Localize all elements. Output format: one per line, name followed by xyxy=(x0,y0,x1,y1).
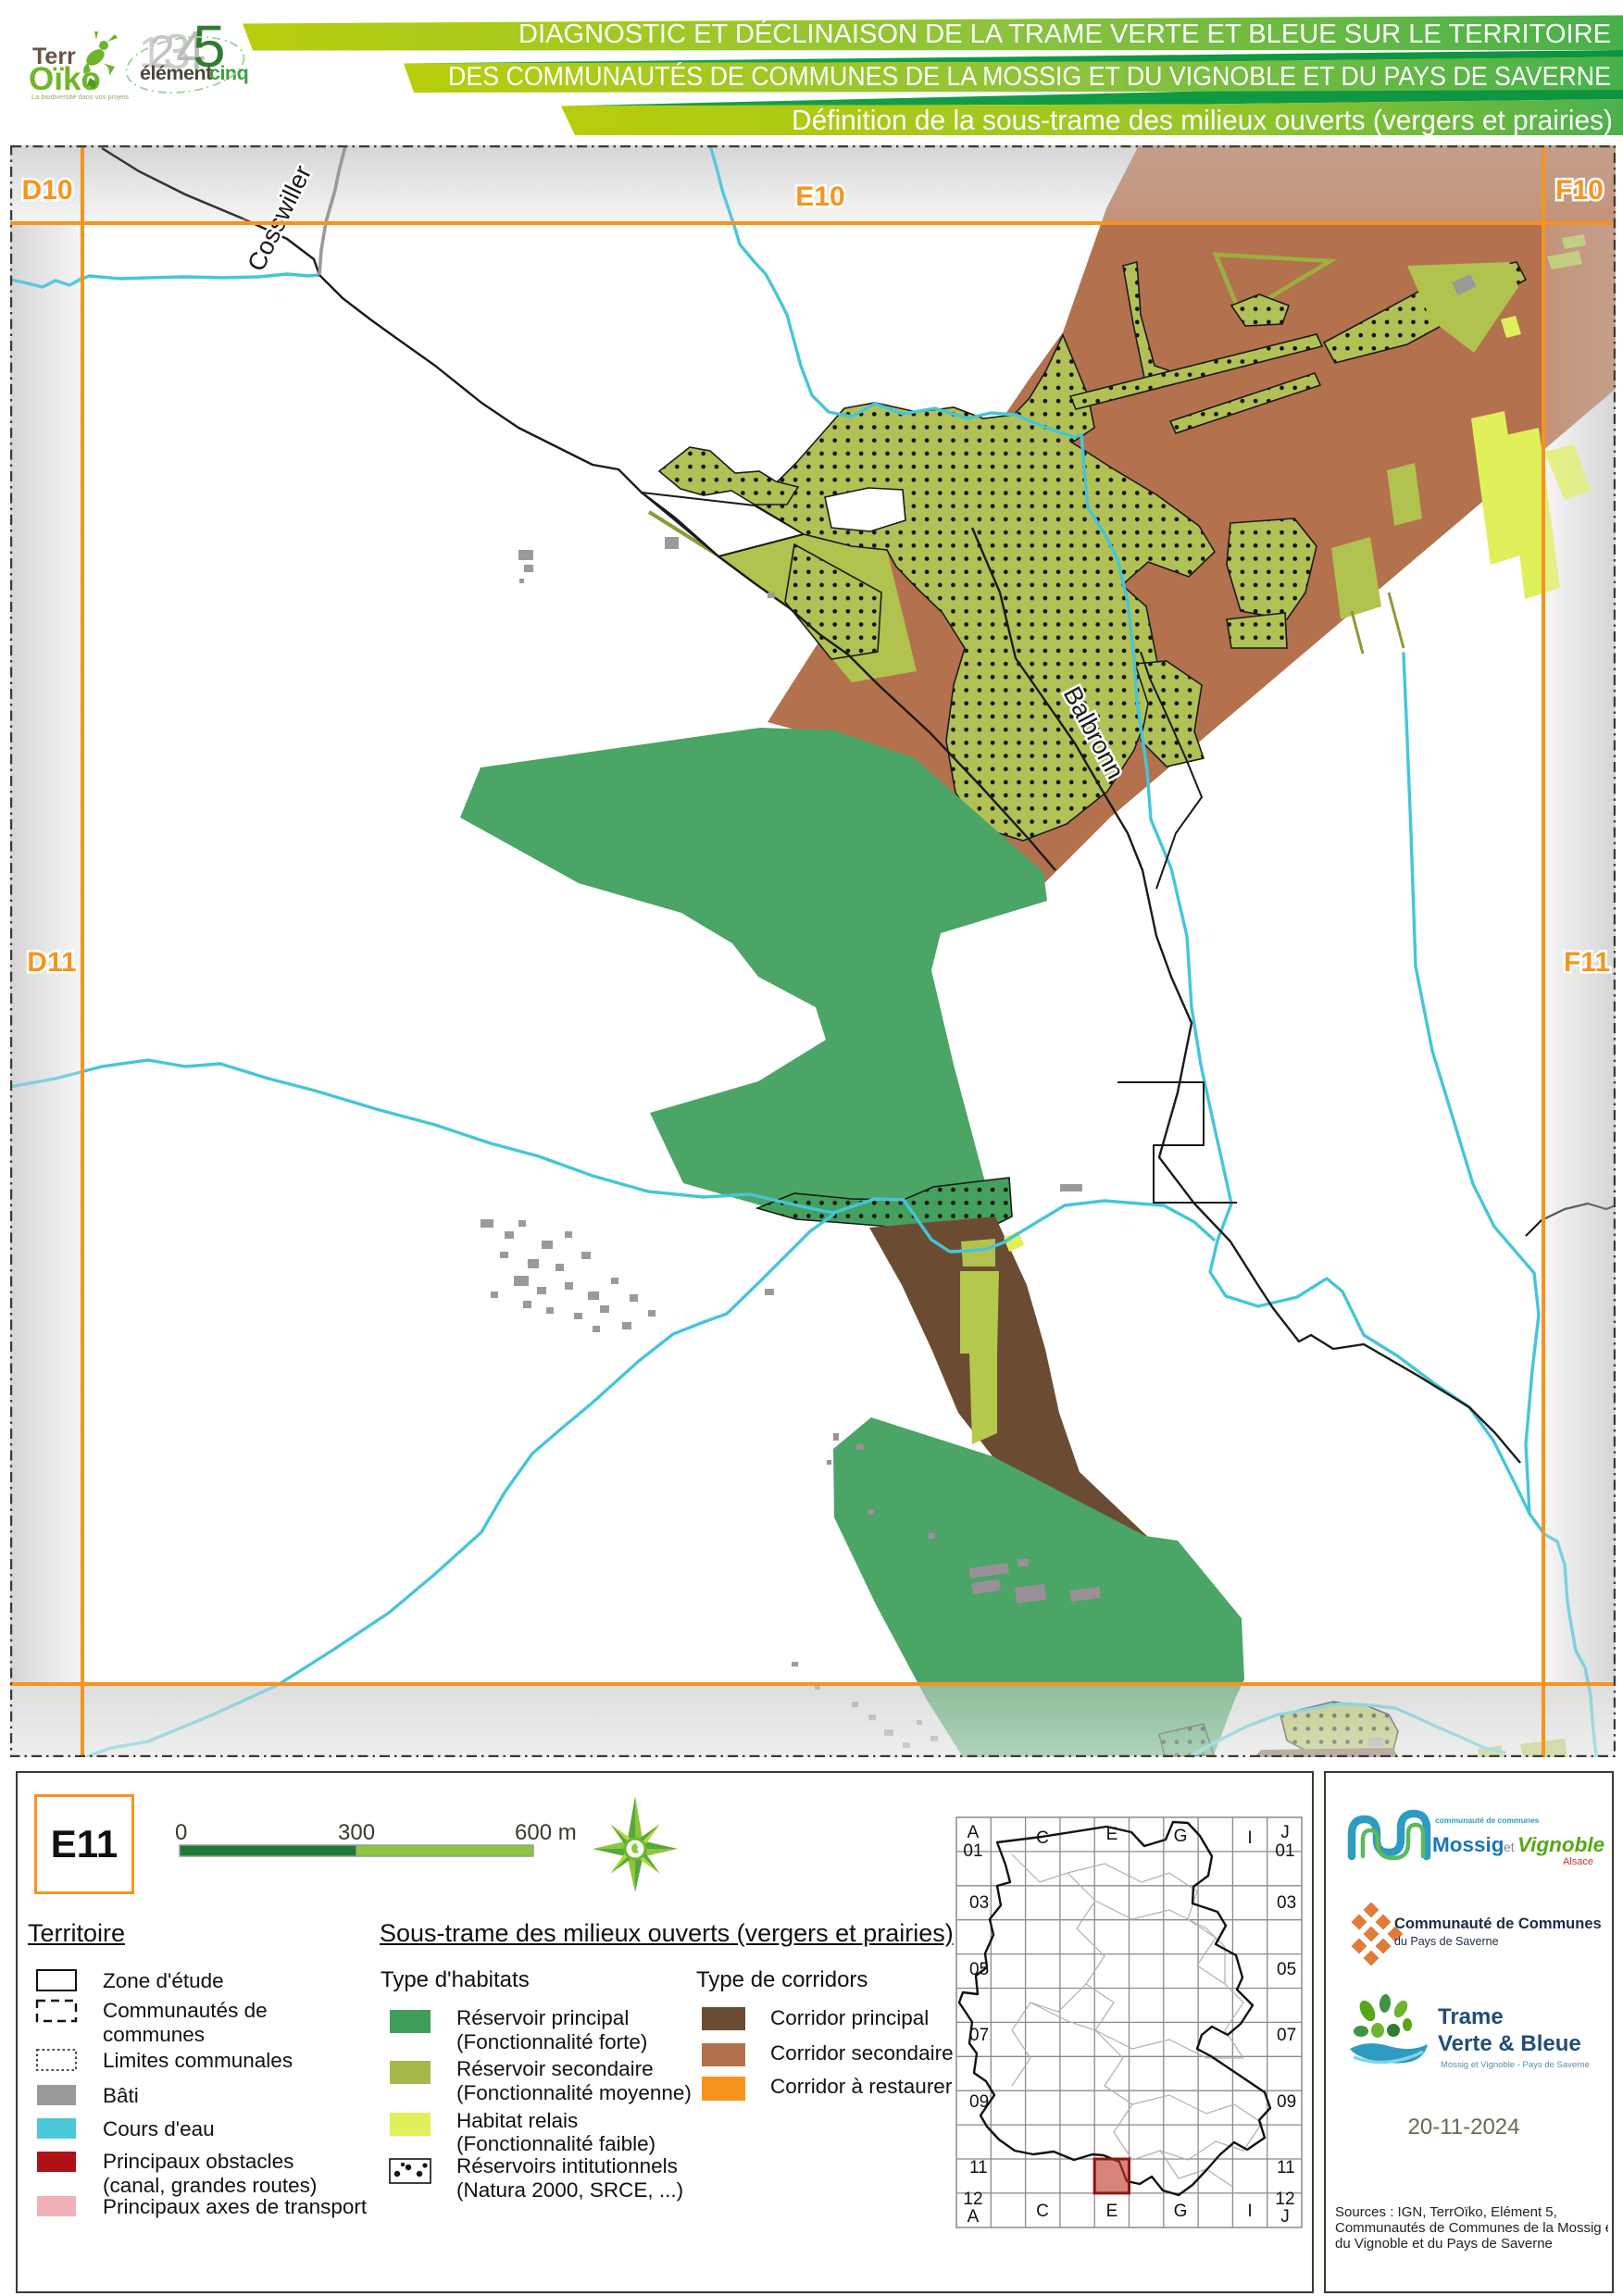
svg-text:12: 12 xyxy=(1275,2190,1294,2209)
svg-text:Corridor secondaire: Corridor secondaire xyxy=(770,2041,954,2065)
svg-text:(canal, grandes routes): (canal, grandes routes) xyxy=(103,2174,317,2197)
svg-text:Zone d'étude: Zone d'étude xyxy=(103,1969,224,1992)
svg-text:(Fonctionnalité moyenne): (Fonctionnalité moyenne) xyxy=(456,2081,692,2104)
svg-text:12: 12 xyxy=(963,2190,982,2209)
svg-text:Réservoir secondaire: Réservoir secondaire xyxy=(456,2057,654,2080)
svg-text:I: I xyxy=(1247,2202,1252,2221)
svg-text:Vignoble: Vignoble xyxy=(1517,1833,1604,1856)
svg-text:du Vignoble et du Pays de Save: du Vignoble et du Pays de Saverne xyxy=(1335,2236,1553,2252)
svg-text:09: 09 xyxy=(1277,2092,1296,2112)
svg-text:07: 07 xyxy=(1277,2026,1296,2045)
svg-text:Corridor à restaurer: Corridor à restaurer xyxy=(770,2075,953,2098)
svg-text:Mossig et Vignoble - Pays de S: Mossig et Vignoble - Pays de Saverne xyxy=(1441,2060,1590,2070)
svg-text:Limites communales: Limites communales xyxy=(103,2049,293,2072)
svg-text:F11: F11 xyxy=(1564,947,1610,978)
svg-text:Communauté de Communes: Communauté de Communes xyxy=(1394,1915,1602,1932)
svg-text:03: 03 xyxy=(1277,1893,1296,1913)
svg-text:Réservoirs intitutionnels: Réservoirs intitutionnels xyxy=(456,2154,678,2177)
svg-text:C: C xyxy=(1036,1828,1049,1848)
svg-text:(Natura 2000, SRCE, ...): (Natura 2000, SRCE, ...) xyxy=(456,2178,683,2202)
svg-text:F10: F10 xyxy=(1555,175,1604,206)
svg-text:E10: E10 xyxy=(795,181,844,212)
svg-text:Mossig: Mossig xyxy=(1432,1833,1504,1856)
svg-text:communes: communes xyxy=(103,2023,205,2046)
svg-text:09: 09 xyxy=(969,2092,989,2112)
svg-text:cinq: cinq xyxy=(209,62,248,84)
svg-text:Communautés de: Communautés de xyxy=(103,1999,268,2022)
svg-text:Habitat relais: Habitat relais xyxy=(456,2109,578,2132)
svg-text:élément: élément xyxy=(140,62,212,84)
svg-text:A: A xyxy=(968,1823,980,1842)
svg-text:01: 01 xyxy=(1275,1841,1294,1861)
svg-text:A: A xyxy=(968,2207,980,2227)
svg-text:D11: D11 xyxy=(27,947,76,978)
svg-text:J: J xyxy=(1280,2207,1290,2227)
svg-text:Trame: Trame xyxy=(1438,2004,1504,2029)
svg-text:Bâti: Bâti xyxy=(103,2084,139,2107)
svg-text:Type d'habitats: Type d'habitats xyxy=(381,1967,530,1992)
svg-text:communauté de communes: communauté de communes xyxy=(1435,1816,1540,1825)
svg-text:E: E xyxy=(1106,2202,1118,2221)
svg-text:05: 05 xyxy=(1277,1960,1296,1979)
svg-text:07: 07 xyxy=(969,2026,989,2045)
svg-text:Principaux axes de transport: Principaux axes de transport xyxy=(103,2195,368,2218)
svg-text:Principaux obstacles: Principaux obstacles xyxy=(103,2150,293,2173)
svg-text:C: C xyxy=(1036,2202,1049,2221)
svg-text:11: 11 xyxy=(1277,2158,1295,2177)
svg-text:J: J xyxy=(1280,1823,1290,1842)
svg-text:D10: D10 xyxy=(21,175,72,206)
svg-text:et: et xyxy=(1504,1840,1515,1854)
svg-text:La biodiversité dans vos proje: La biodiversité dans vos projets xyxy=(31,93,129,101)
svg-text:du Pays de Saverne: du Pays de Saverne xyxy=(1394,1935,1499,1948)
svg-text:(Fonctionnalité faible): (Fonctionnalité faible) xyxy=(456,2132,655,2155)
svg-text:Définition de la sous-trame de: Définition de la sous-trame des milieux … xyxy=(792,104,1613,136)
svg-text:Cours d'eau: Cours d'eau xyxy=(103,2117,215,2140)
svg-text:G: G xyxy=(1174,1827,1188,1846)
svg-text:03: 03 xyxy=(969,1893,989,1913)
svg-text:I: I xyxy=(1247,1828,1252,1848)
svg-text:Corridor principal: Corridor principal xyxy=(770,2006,929,2029)
svg-text:20-11-2024: 20-11-2024 xyxy=(1408,2115,1520,2140)
svg-text:E: E xyxy=(1106,1825,1118,1844)
svg-text:Verte & Bleue: Verte & Bleue xyxy=(1438,2031,1581,2056)
svg-text:(Fonctionnalité forte): (Fonctionnalité forte) xyxy=(456,2030,647,2053)
svg-text:DIAGNOSTIC ET DÉCLINAISON DE L: DIAGNOSTIC ET DÉCLINAISON DE LA TRAME VE… xyxy=(518,19,1611,49)
svg-text:Réservoir principal: Réservoir principal xyxy=(456,2006,629,2029)
svg-text:G: G xyxy=(1174,2202,1188,2221)
svg-text:Type de corridors: Type de corridors xyxy=(696,1967,868,1992)
svg-text:11: 11 xyxy=(969,2158,988,2177)
svg-text:Alsace: Alsace xyxy=(1563,1856,1593,1867)
svg-text:DES COMMUNAUTÉS DE COMMUNES DE: DES COMMUNAUTÉS DE COMMUNES DE LA MOSSIG… xyxy=(448,61,1611,92)
svg-text:Communautés de Communes de la: Communautés de Communes de la Mossig et xyxy=(1335,2220,1608,2236)
svg-text:01: 01 xyxy=(963,1841,982,1861)
svg-text:Sources : IGN, TerrOïko, Eléme: Sources : IGN, TerrOïko, Elément 5, xyxy=(1335,2204,1557,2220)
svg-text:05: 05 xyxy=(969,1960,989,1979)
